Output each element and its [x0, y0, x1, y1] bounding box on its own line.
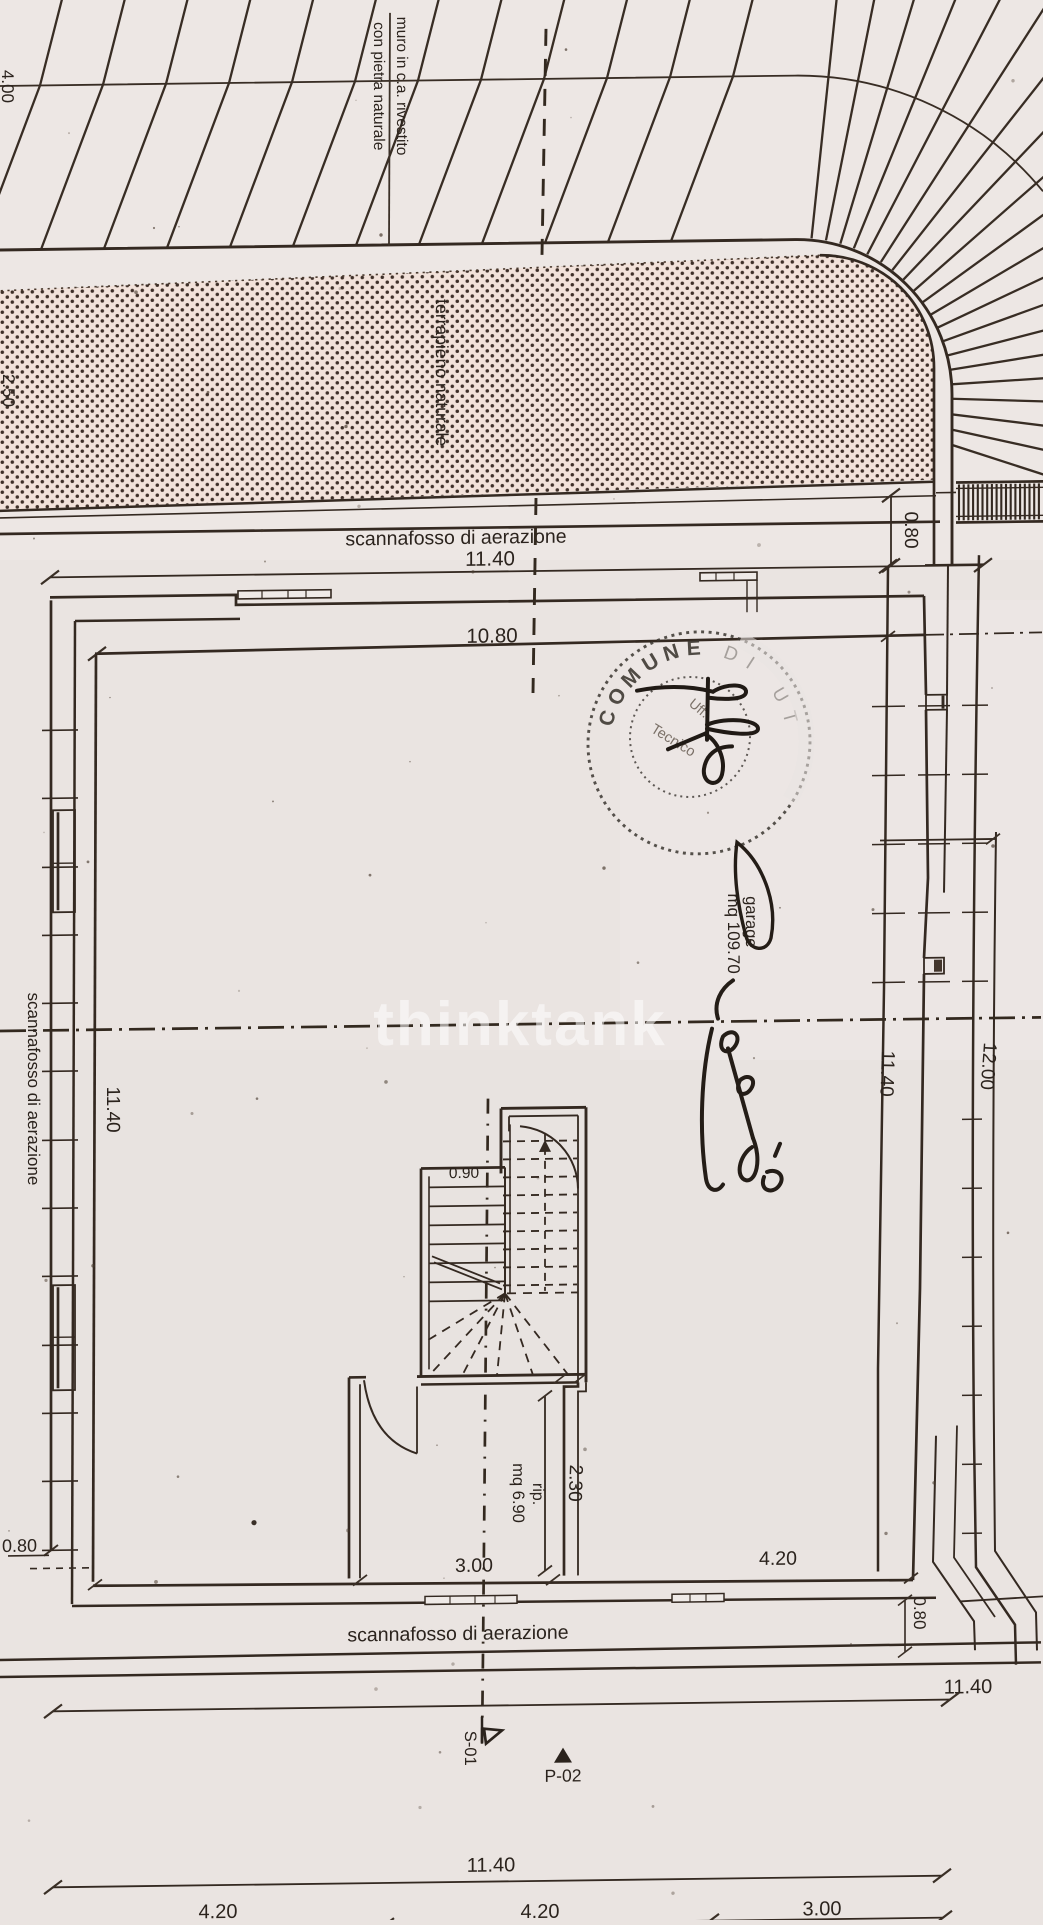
svg-text:S-01: S-01	[461, 1731, 479, 1766]
svg-text:scannafosso di aerazione: scannafosso di aerazione	[345, 526, 566, 551]
svg-text:scannafosso di aerazione: scannafosso di aerazione	[347, 1622, 568, 1647]
svg-text:rip.: rip.	[529, 1483, 546, 1505]
svg-text:11.40: 11.40	[102, 1086, 123, 1132]
svg-text:0.90: 0.90	[449, 1165, 480, 1182]
svg-text:con pietra naturale: con pietra naturale	[370, 22, 387, 151]
svg-text:10.80: 10.80	[466, 624, 517, 648]
svg-text:11.40: 11.40	[944, 1676, 993, 1699]
svg-text:4.20: 4.20	[199, 1901, 238, 1920]
svg-text:3.00: 3.00	[803, 1898, 842, 1920]
svg-text:scannafosso di aerazione: scannafosso di aerazione	[24, 992, 43, 1185]
svg-text:3.00: 3.00	[455, 1555, 493, 1577]
svg-text:4.20: 4.20	[759, 1548, 797, 1570]
svg-text:mq 6.90: mq 6.90	[509, 1463, 527, 1523]
svg-text:4.20: 4.20	[521, 1901, 560, 1920]
svg-text:0.80: 0.80	[910, 1596, 929, 1629]
svg-text:11.40: 11.40	[465, 547, 515, 571]
svg-text:11.40: 11.40	[467, 1854, 516, 1877]
svg-text:E: E	[686, 636, 701, 660]
svg-text:garage: garage	[742, 896, 760, 948]
svg-text:12.00: 12.00	[976, 1042, 1000, 1091]
svg-text:0.80: 0.80	[900, 511, 921, 548]
svg-text:2.50: 2.50	[0, 374, 18, 407]
svg-text:11.40: 11.40	[875, 1050, 898, 1097]
svg-text:muro in c.a. rivestito: muro in c.a. rivestito	[393, 17, 410, 156]
svg-text:0.80: 0.80	[2, 1536, 37, 1556]
svg-text:4.00: 4.00	[0, 70, 17, 103]
svg-text:thinktank: thinktank	[373, 990, 667, 1059]
svg-text:P-02: P-02	[545, 1765, 582, 1785]
svg-text:terrapieno naturale: terrapieno naturale	[432, 299, 452, 446]
svg-text:2.30: 2.30	[564, 1464, 586, 1501]
